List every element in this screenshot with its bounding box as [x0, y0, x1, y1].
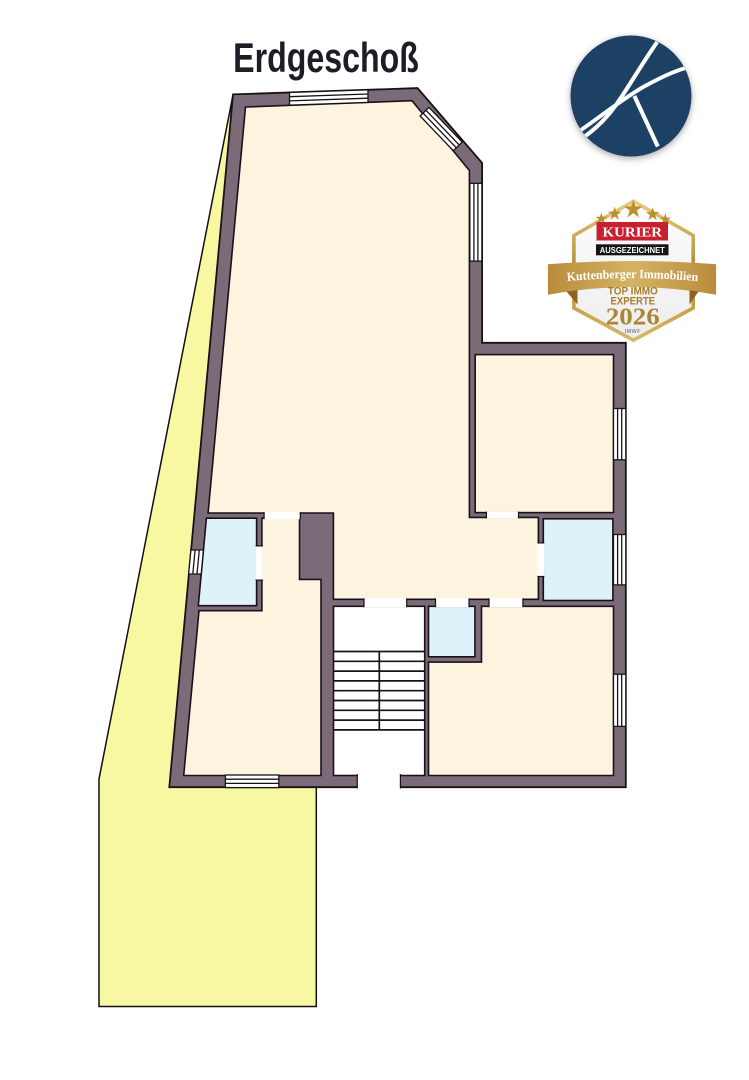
- svg-text:IMWF: IMWF: [625, 329, 641, 335]
- svg-text:AUSGEZEICHNET: AUSGEZEICHNET: [600, 245, 665, 255]
- svg-text:2026: 2026: [606, 304, 660, 331]
- svg-text:KURIER: KURIER: [603, 225, 663, 240]
